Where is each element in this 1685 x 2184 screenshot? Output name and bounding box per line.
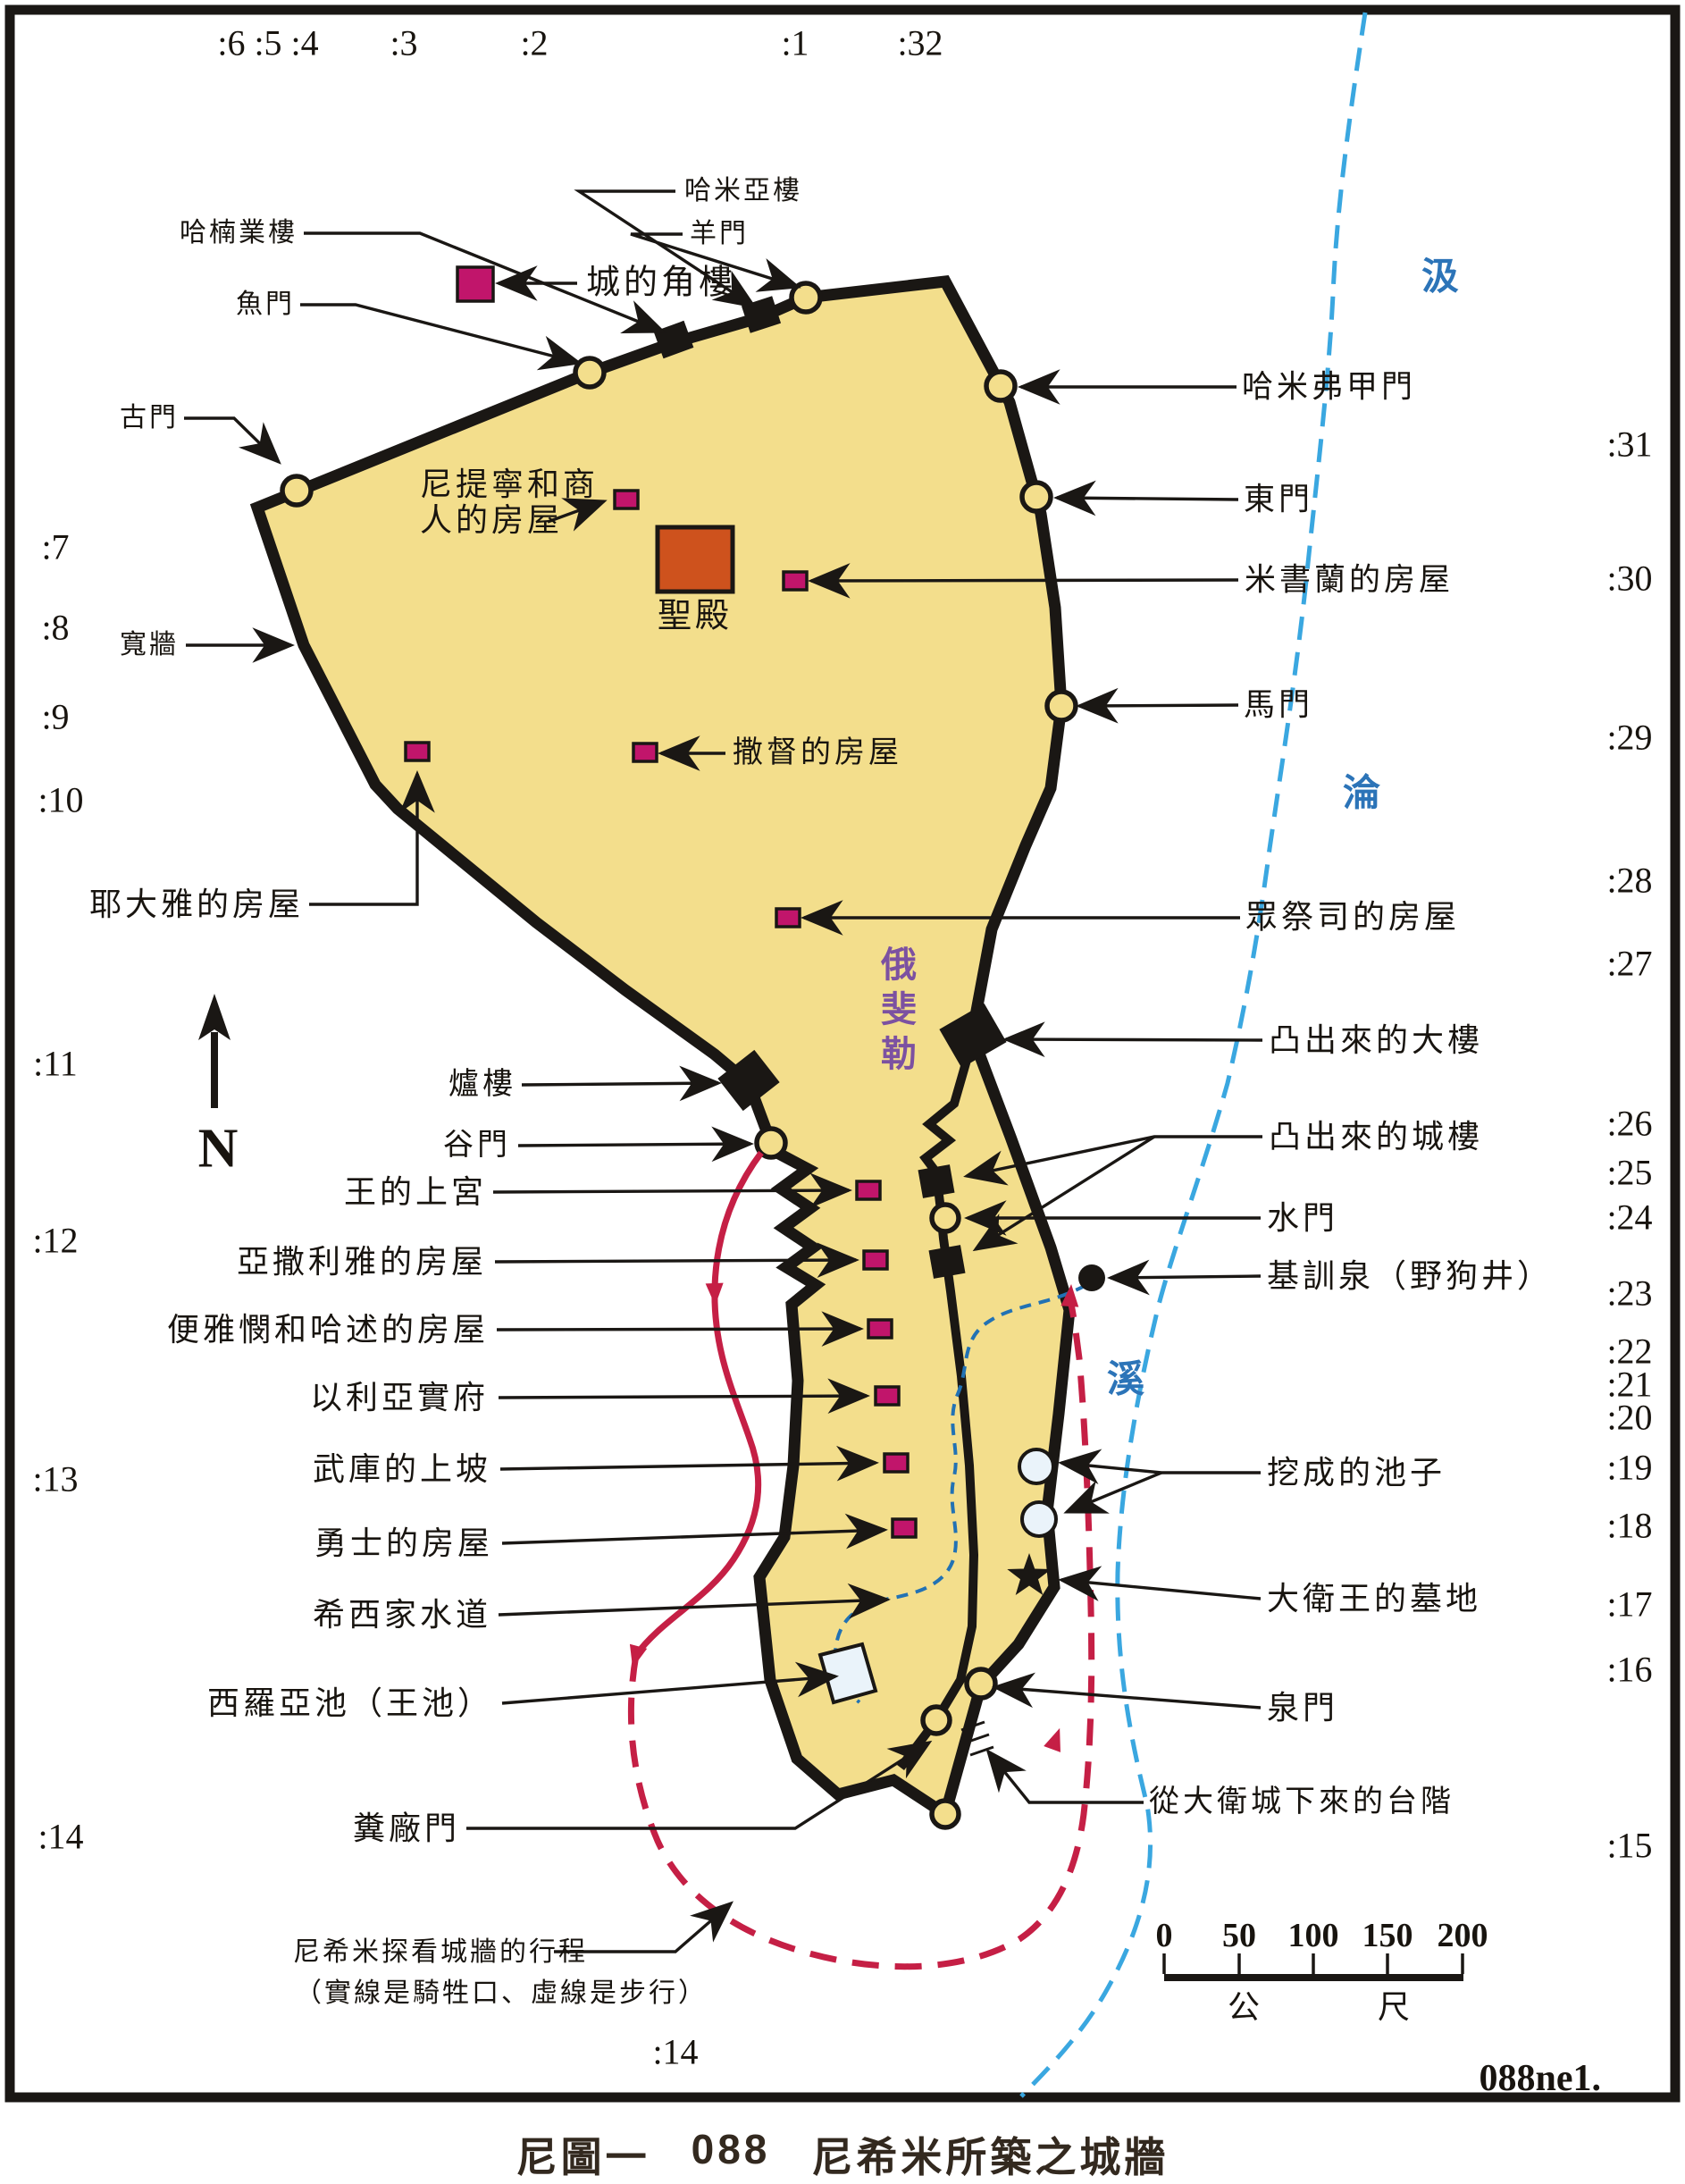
scale-unit-right: 尺 — [1378, 1981, 1410, 2028]
verse-right-26: :26 — [1606, 1103, 1652, 1145]
verse-right-17: :17 — [1606, 1583, 1652, 1625]
verse-right-31: :31 — [1606, 424, 1652, 466]
temple-marker — [658, 527, 733, 592]
label-dung-gate: 糞廠門 — [353, 1810, 460, 1846]
verse-left-8: :8 — [41, 607, 69, 649]
verse-left-12: :12 — [32, 1220, 78, 1262]
label-projecting-great-tower: 凸出來的大樓 — [1269, 1022, 1483, 1058]
river-char-ji: 汲 — [1421, 247, 1459, 301]
horse-gate-marker — [1047, 692, 1076, 720]
label-fish-gate: 魚門 — [236, 290, 295, 320]
south-tip-gate-marker — [932, 1801, 959, 1827]
label-ophel: 俄斐勒 — [869, 945, 921, 1079]
eliashib-house-marker — [876, 1387, 899, 1405]
verse-right-27: :27 — [1606, 943, 1652, 985]
verse-top-1: :1 — [781, 22, 809, 64]
nehemiah-wall-map: :6 :5 :4 :3 :2 :1 :32 :7 :8 :9 :10 :11 :… — [0, 0, 1685, 2175]
fountain-gate-marker — [967, 1669, 995, 1698]
label-kings-upper-palace: 王的上宮 — [344, 1174, 487, 1210]
label-tower-furnaces: 爐樓 — [448, 1068, 516, 1102]
verse-left-11: :11 — [33, 1043, 78, 1085]
river-char-lun: 淪 — [1343, 763, 1380, 818]
verse-top-6-5-4: :6 :5 :4 — [217, 22, 318, 64]
label-benjamin-hasshub-houses: 便雅憫和哈述的房屋 — [167, 1312, 489, 1348]
meshullam-house-marker — [784, 572, 807, 590]
water-gate-marker — [932, 1205, 959, 1231]
scale-tick-200: 200 — [1438, 1916, 1488, 1955]
label-mighty-men-houses: 勇士的房屋 — [314, 1525, 493, 1561]
corner-tower-marker — [457, 267, 493, 301]
verse-bottom-14: :14 — [652, 2031, 698, 2073]
benjamin-house-marker — [868, 1320, 892, 1338]
scale-unit-left: 公 — [1228, 1981, 1260, 2028]
label-corner-tower: 城的角樓 — [586, 265, 736, 303]
caption-number: 088 — [692, 2125, 771, 2184]
label-priests-houses: 眾祭司的房屋 — [1245, 899, 1460, 935]
hewn-pool-lower-marker — [1022, 1502, 1056, 1536]
label-hezekiah-conduit: 希西家水道 — [313, 1597, 491, 1633]
projecting-tower-upper-marker — [918, 1164, 954, 1198]
route-arrow-3 — [1044, 1725, 1068, 1751]
label-fountain-gate: 泉門 — [1267, 1690, 1338, 1726]
hammiphkad-gate-marker — [986, 372, 1015, 400]
east-gate-marker — [1022, 483, 1051, 511]
verse-right-30: :30 — [1606, 558, 1652, 600]
label-broad-wall: 寬牆 — [120, 630, 179, 660]
azariah-house-marker — [864, 1251, 887, 1269]
verse-right-29: :29 — [1606, 717, 1652, 759]
verse-top-32: :32 — [897, 22, 943, 64]
projecting-tower-lower-marker — [928, 1245, 965, 1279]
verse-top-2: :2 — [520, 22, 548, 64]
label-david-tombs: 大衛王的墓地 — [1267, 1581, 1481, 1617]
river-char-xi: 溪 — [1107, 1349, 1144, 1404]
verse-left-9: :9 — [41, 696, 69, 738]
verse-left-14: :14 — [38, 1816, 83, 1858]
scale-tick-50: 50 — [1222, 1916, 1256, 1955]
legend-route-line2: （實線是騎牲口、虛線是步行） — [295, 1978, 708, 2009]
verse-right-16: :16 — [1606, 1649, 1652, 1691]
label-eliashib-house: 以利亞實府 — [310, 1380, 489, 1415]
label-temple: 聖殿 — [658, 598, 733, 636]
hewn-pool-upper-marker — [1019, 1449, 1053, 1483]
scale-tick-0: 0 — [1156, 1916, 1173, 1955]
verse-right-24: :24 — [1606, 1197, 1652, 1239]
caption-figure-ref: 尼圖一 — [516, 2125, 650, 2184]
label-valley-gate: 谷門 — [443, 1129, 511, 1163]
scale-tick-100: 100 — [1288, 1916, 1339, 1955]
verse-right-23: :23 — [1606, 1273, 1652, 1315]
label-tower-hananel: 哈楠業樓 — [180, 218, 298, 248]
map-caption: 尼圖一 088 尼希米所築之城牆 — [0, 2125, 1685, 2184]
label-azariah-house: 亞撒利雅的房屋 — [237, 1244, 487, 1280]
label-sheep-gate: 羊門 — [690, 219, 749, 249]
label-horse-gate: 馬門 — [1244, 687, 1313, 722]
label-tower-hammeah: 哈米亞樓 — [684, 176, 802, 206]
label-east-gate: 東門 — [1244, 482, 1313, 517]
label-gihon-spring: 基訓泉（野狗井） — [1267, 1258, 1553, 1294]
scale-ticks — [1164, 1953, 1463, 1974]
verse-right-15: :15 — [1606, 1825, 1652, 1867]
label-armory-ascent: 武庫的上坡 — [313, 1451, 491, 1487]
city-wall-outline — [257, 281, 1069, 1814]
label-hammiphkad-gate: 哈米弗甲門 — [1242, 369, 1416, 404]
verse-right-28: :28 — [1606, 860, 1652, 902]
kings-palace-marker — [857, 1181, 880, 1199]
route-arrow-1 — [706, 1283, 725, 1306]
north-letter: N — [198, 1118, 239, 1181]
verse-right-18: :18 — [1606, 1505, 1652, 1547]
label-zadok-house: 撒督的房屋 — [733, 736, 902, 770]
jedaiah-house-marker — [406, 743, 429, 760]
label-hewn-pools: 挖成的池子 — [1267, 1455, 1446, 1491]
caption-title: 尼希米所築之城牆 — [811, 2125, 1169, 2184]
label-old-gate: 古門 — [120, 403, 179, 433]
label-water-gate: 水門 — [1267, 1200, 1338, 1236]
nethinim-house-marker — [615, 491, 638, 508]
verse-right-25: :25 — [1606, 1152, 1652, 1194]
verse-left-7: :7 — [41, 526, 69, 568]
label-nethinim-merchants-houses: 尼提寧和商 人的房屋 — [420, 466, 599, 539]
armory-marker — [884, 1454, 908, 1472]
legend-route-line1: 尼希米探看城牆的行程 — [293, 1937, 588, 1968]
label-siloam-pool: 西羅亞池（王池） — [207, 1685, 493, 1721]
map-canvas — [0, 0, 1685, 2175]
scale-tick-150: 150 — [1362, 1916, 1413, 1955]
label-jedaiah-house: 耶大雅的房屋 — [89, 886, 304, 922]
priests-house-marker — [776, 909, 800, 927]
verse-left-10: :10 — [38, 779, 83, 821]
mighty-men-house-marker — [893, 1519, 916, 1537]
gihon-spring-marker — [1078, 1264, 1105, 1291]
verse-left-13: :13 — [32, 1458, 78, 1500]
scale-bar — [1164, 1974, 1463, 1981]
verse-top-3: :3 — [390, 22, 417, 64]
old-gate-marker — [282, 476, 311, 505]
fish-gate-marker — [575, 358, 604, 387]
dung-gate-marker — [923, 1707, 950, 1734]
label-steps-from-city-of-david: 從大衛城下來的台階 — [1149, 1785, 1454, 1819]
route-solid-line — [636, 1153, 761, 1655]
verse-right-20: :20 — [1606, 1397, 1652, 1439]
label-meshullam-house: 米書蘭的房屋 — [1245, 562, 1454, 597]
zadok-house-marker — [633, 743, 657, 761]
label-projecting-towers: 凸出來的城樓 — [1269, 1119, 1483, 1155]
verse-right-19: :19 — [1606, 1447, 1652, 1489]
map-code: 088ne1. — [1480, 2057, 1602, 2100]
